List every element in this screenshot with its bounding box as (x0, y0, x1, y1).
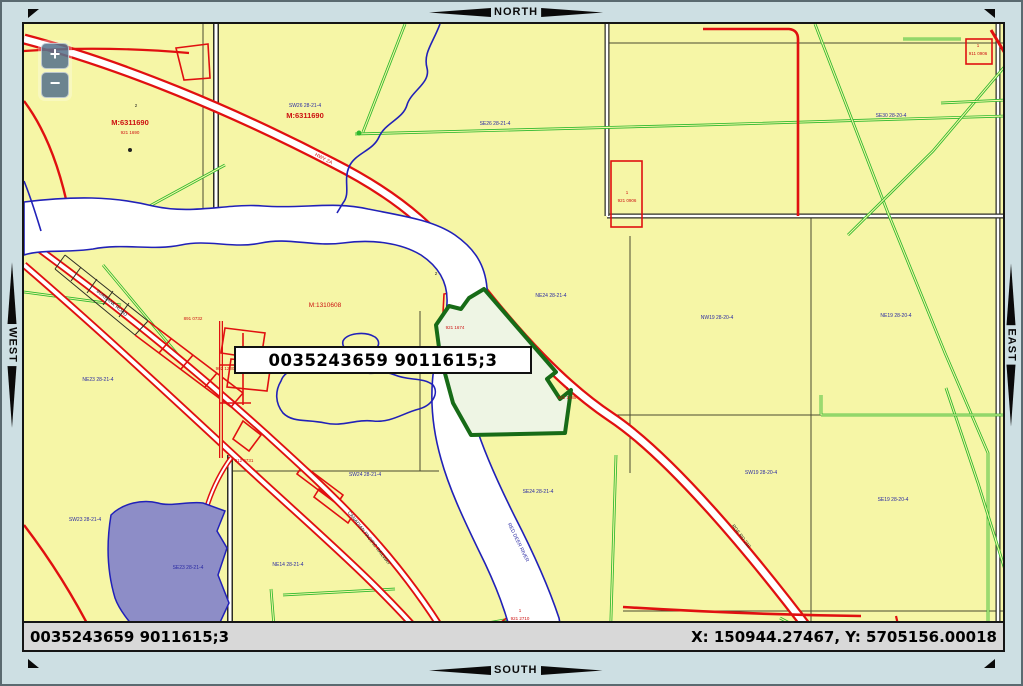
status-bar: 0035243659 9011615;3 X: 150944.27467, Y:… (24, 621, 1003, 650)
east-arrow-icon (1007, 263, 1016, 325)
map-label: NE23 28-21-4 (82, 377, 113, 383)
east-arrow-icon (1007, 365, 1016, 427)
map-label: NE24 28-21-4 (535, 293, 566, 299)
north-arrow-icon (541, 8, 603, 17)
map-canvas[interactable]: SW26 28-21-4M:63116902M:6311690921 1690S… (24, 24, 1003, 650)
east-label: EAST (1006, 328, 1017, 361)
map-label: 921 1690 (121, 130, 140, 135)
west-label: WEST (7, 327, 18, 363)
south-label: SOUTH (494, 665, 538, 676)
west-arrow-icon (8, 366, 17, 428)
map-label: 912 0731 (235, 458, 254, 463)
pan-north-control[interactable]: NORTH (429, 7, 603, 18)
zoom-controls: + − (38, 40, 72, 101)
map-label: SE30 28-20-4 (876, 113, 907, 119)
south-arrow-icon (429, 666, 491, 675)
map-label: SE24 28-21-4 (523, 489, 554, 495)
map-label: M:6311690 (111, 118, 149, 127)
map-label: NE14 28-21-4 (272, 562, 303, 568)
map-label: SE23 28-21-4 (173, 565, 204, 571)
map-label: SW19 28-20-4 (745, 470, 777, 476)
north-arrow-icon (429, 8, 491, 17)
zoom-out-button[interactable]: − (41, 72, 69, 98)
map-label: SW23 28-21-4 (69, 517, 101, 523)
map-label: 921 1674 (446, 325, 465, 330)
well-marker (128, 148, 132, 152)
pan-east-control[interactable]: EAST (1001, 285, 1021, 405)
pan-south-control[interactable]: SOUTH (429, 665, 603, 676)
pan-southwest-corner-icon[interactable] (28, 659, 39, 668)
map-label: M:1310608 (309, 302, 342, 309)
map-label: SW24 28-21-4 (349, 472, 381, 478)
map-label: 891 0732 (184, 316, 203, 321)
north-label: NORTH (494, 7, 538, 18)
map-label: SE19 28-20-4 (878, 497, 909, 503)
zoom-in-button[interactable]: + (41, 43, 69, 69)
pan-west-control[interactable]: WEST (2, 285, 22, 405)
status-parcel-id: 0035243659 9011615;3 (30, 628, 229, 646)
map-label: NW19 28-20-4 (701, 315, 734, 321)
south-arrow-icon (541, 666, 603, 675)
map-container: SW26 28-21-4M:63116902M:6311690921 1690S… (22, 22, 1005, 652)
map-label: SE26 28-21-4 (480, 121, 511, 127)
map-label: 921 1685 (558, 395, 577, 400)
selected-parcel-label: 0035243659 9011615;3 (234, 346, 532, 374)
map-label: NE19 28-20-4 (880, 313, 911, 319)
map-label: SW26 28-21-4 (289, 103, 321, 109)
west-arrow-icon (8, 262, 17, 324)
map-label: 902 1230 (216, 366, 235, 371)
map-label: M:6311690 (286, 111, 324, 120)
pan-northwest-corner-icon[interactable] (28, 9, 39, 18)
map-viewer-window: NORTH SOUTH WEST EAST (0, 0, 1023, 686)
map-label: 921 0906 (618, 198, 637, 203)
pan-southeast-corner-icon[interactable] (984, 659, 995, 668)
status-coordinates: X: 150944.27467, Y: 5705156.00018 (691, 628, 997, 646)
map-label: 911 0906 (969, 51, 988, 56)
pan-northeast-corner-icon[interactable] (984, 9, 995, 18)
